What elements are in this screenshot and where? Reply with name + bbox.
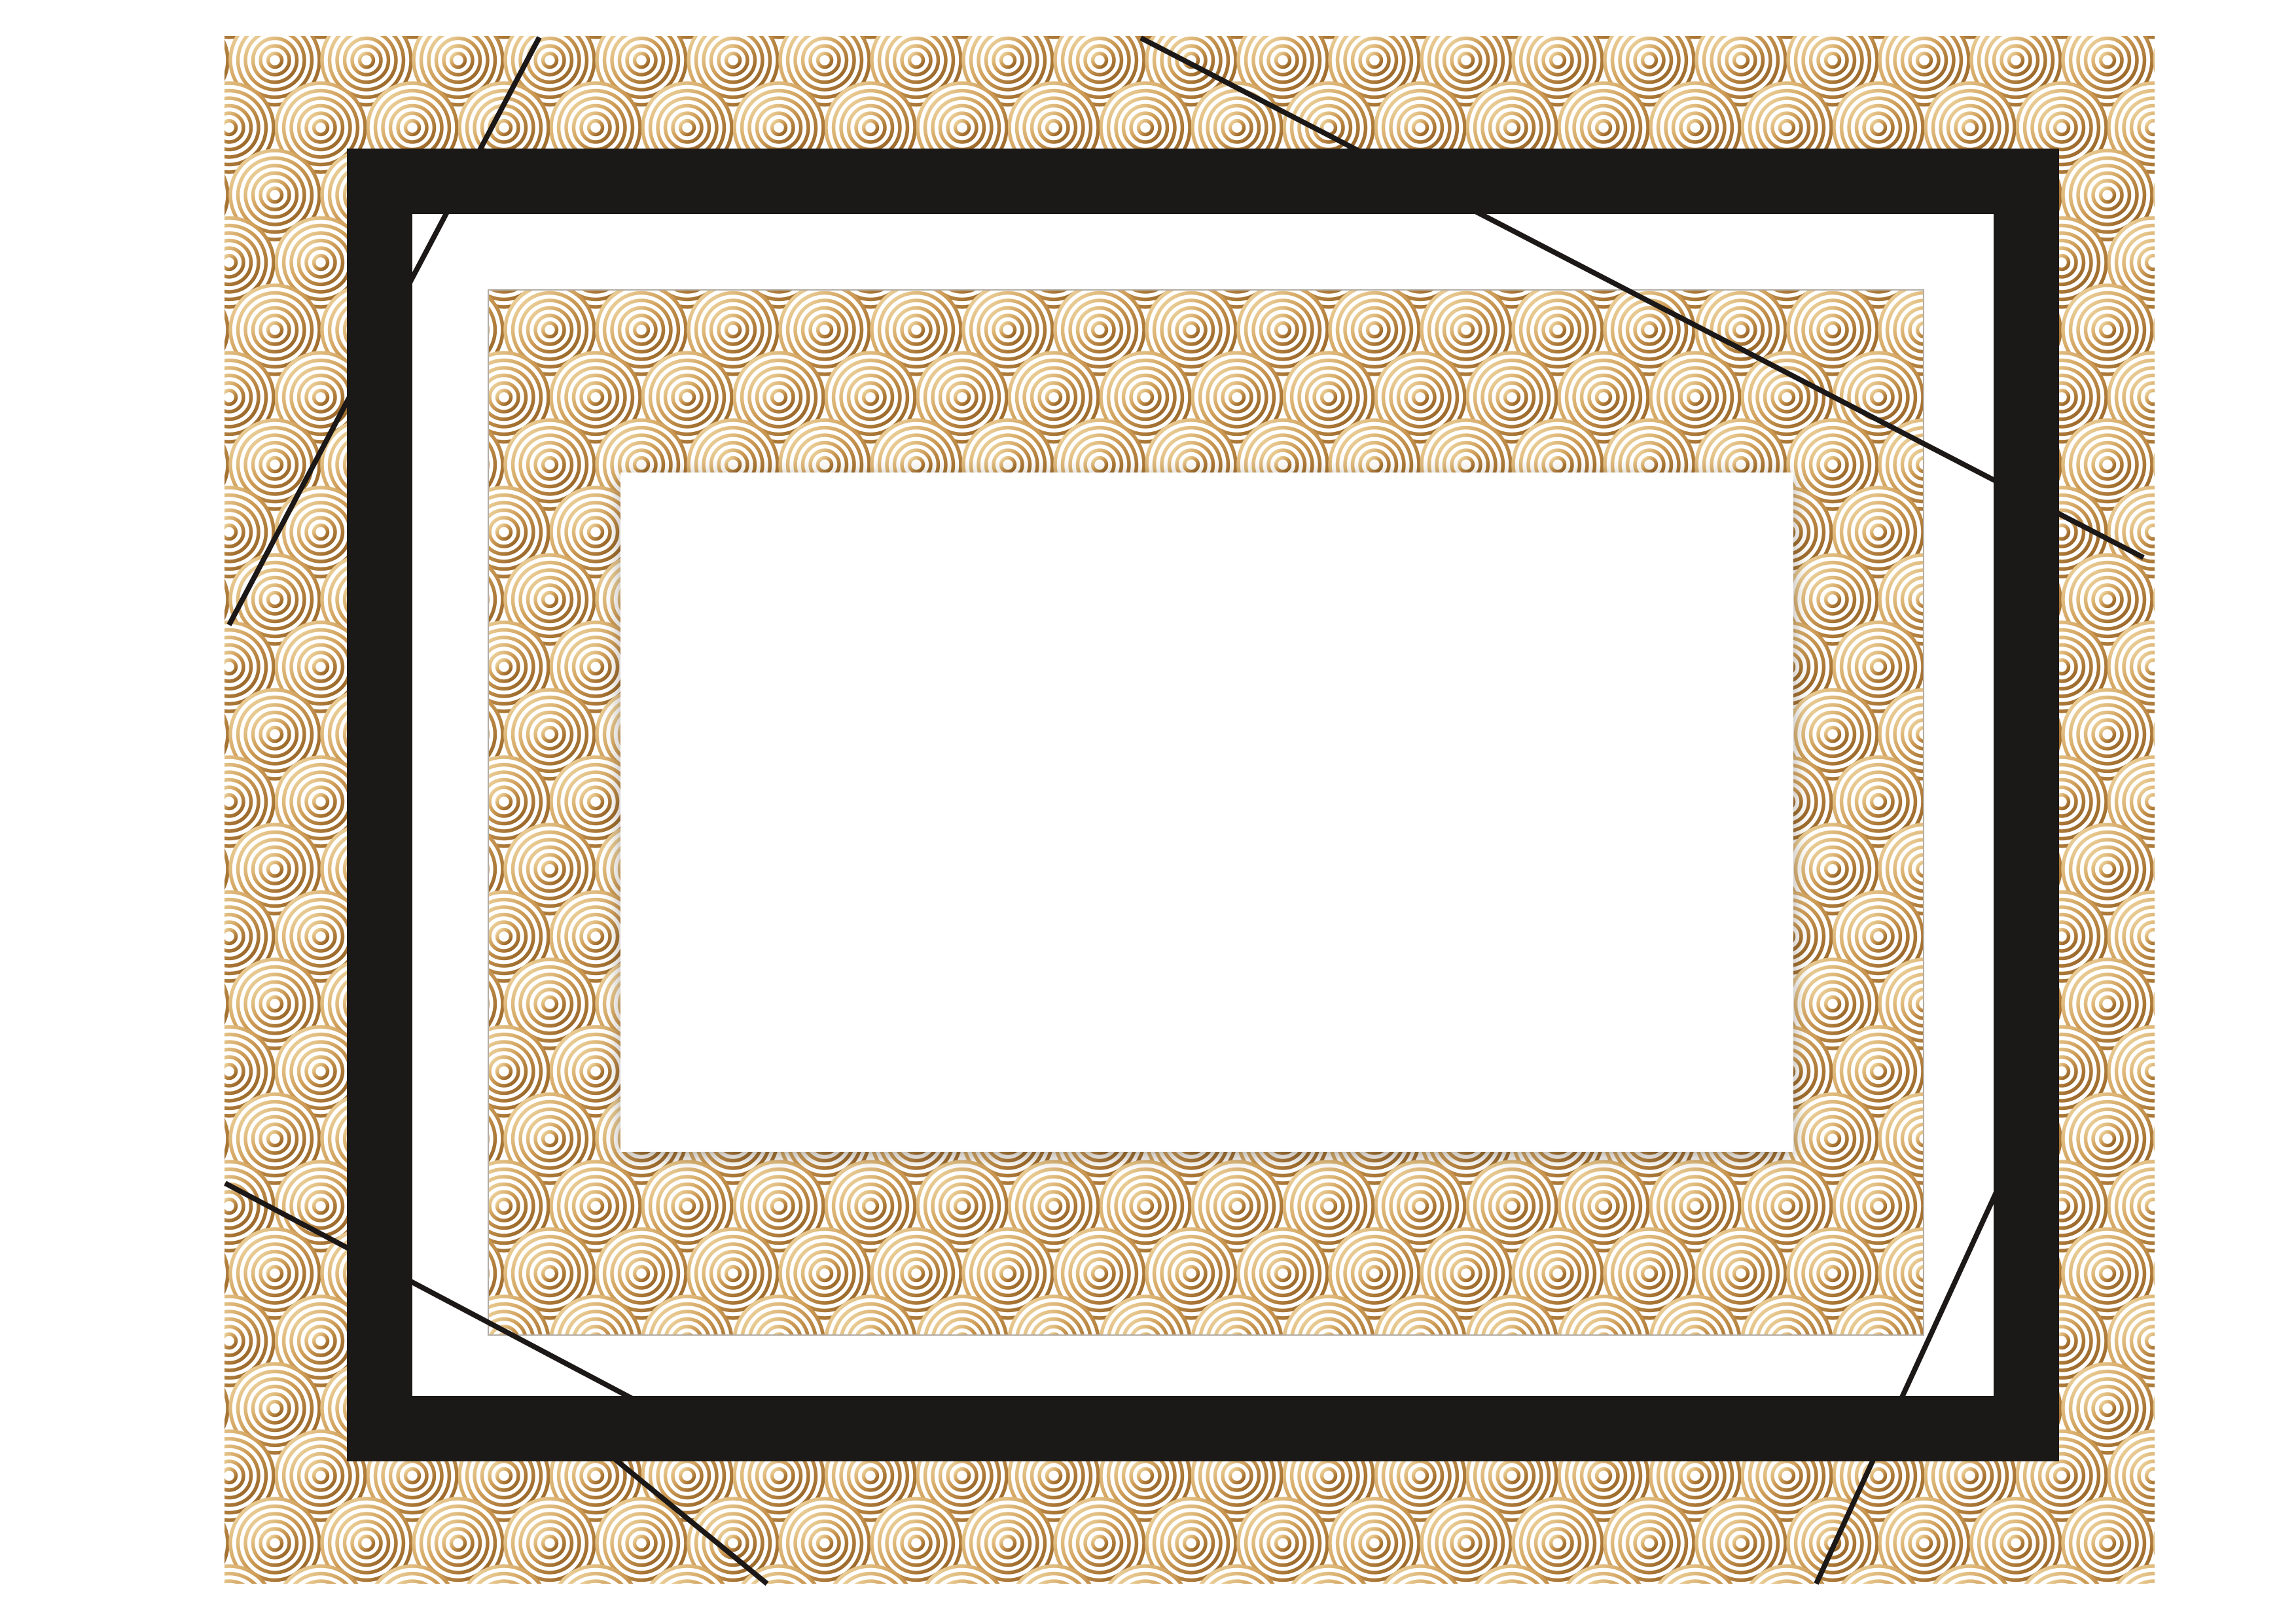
art-deco-frame-graphic bbox=[0, 0, 2296, 1623]
blank-content-card bbox=[620, 473, 1793, 1152]
art-deco-frame-page bbox=[0, 0, 2296, 1623]
